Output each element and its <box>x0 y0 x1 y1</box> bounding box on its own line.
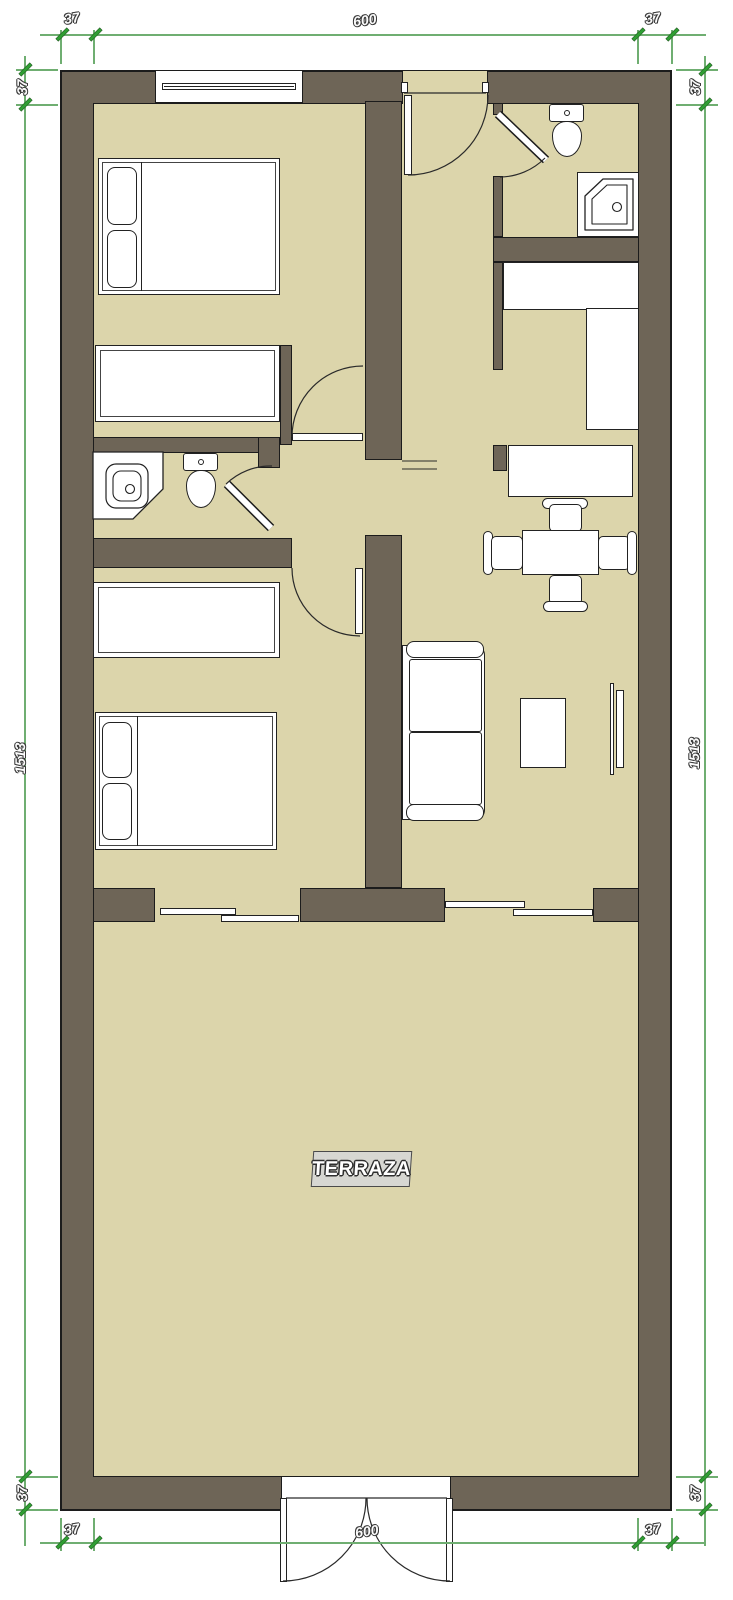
chair-west-seat <box>491 536 523 570</box>
sofa-cushion-b <box>409 732 482 805</box>
dim-bottom-right: 37 <box>633 1518 673 1540</box>
entrance-frame-left <box>401 82 408 93</box>
dining-table <box>522 530 599 575</box>
dimension-line-bottom <box>40 1542 706 1544</box>
dimension-line-top <box>40 34 706 36</box>
entrance-opening-top <box>402 71 488 104</box>
french-door-leaf-left <box>280 1498 287 1582</box>
desk <box>508 445 633 497</box>
entrance-door-leaf <box>404 95 412 175</box>
wall-kitchen-north <box>493 237 639 262</box>
tv-panel <box>616 690 624 768</box>
single-bed-bedroom2-inner <box>98 587 275 653</box>
dim-left-middle: 1513 <box>12 734 28 783</box>
pillow-bedroom2-a <box>102 722 132 778</box>
kitchen-counter-right <box>586 308 639 430</box>
wall-bathroom1-west-bottom <box>493 176 503 237</box>
pillow-bedroom1-b <box>107 230 137 288</box>
toilet-button-bath2 <box>198 459 204 465</box>
dim-right-top: 37 <box>687 68 703 107</box>
bedroom1-door-leaf <box>292 433 363 441</box>
wall-pillar-kitchen-sw <box>493 445 507 471</box>
window-glazing-line <box>164 86 294 87</box>
wall-pillar-bath2-door <box>258 437 280 468</box>
wall-bedroom1-corridor <box>365 101 402 460</box>
chair-east-seat <box>598 536 630 570</box>
dim-top-left: 37 <box>52 7 92 29</box>
wall-stub-bedroom1 <box>280 345 292 445</box>
dim-right-bottom: 37 <box>687 1474 703 1513</box>
single-bed-bedroom1-inner <box>100 350 275 417</box>
chair-east-back <box>627 531 637 575</box>
sliding-door-bedroom2-a <box>160 908 236 915</box>
dim-left-bottom: 37 <box>14 1474 30 1513</box>
wall-bathroom2-south <box>93 538 292 568</box>
terraza-label-text: TERRAZA <box>311 1158 412 1181</box>
french-door-opening <box>281 1477 451 1511</box>
pillow-bedroom1-a <box>107 167 137 225</box>
sofa-cushion-a <box>409 659 482 732</box>
french-door-leaf-right <box>446 1498 453 1582</box>
floor-plan: TERRAZA <box>0 0 733 1600</box>
wall-bathroom1-west-top <box>493 103 503 115</box>
kitchen-counter-top <box>503 262 639 310</box>
chair-south-back <box>543 601 588 612</box>
dim-bottom-left: 37 <box>52 1518 92 1540</box>
dimension-line-left <box>24 56 26 1546</box>
dim-bottom-center: 600 <box>343 1520 391 1543</box>
sliding-door-living-a <box>445 901 525 908</box>
sliding-door-living-b <box>513 909 593 916</box>
toilet-button-bath1 <box>564 110 570 116</box>
terraza-room-label: TERRAZA <box>311 1151 413 1187</box>
wall-terrace-1 <box>93 888 155 922</box>
tv-bracket <box>610 683 614 775</box>
corner-shower-bath1 <box>577 172 639 237</box>
double-bed-bedroom1-divider <box>141 162 142 291</box>
dim-top-right: 37 <box>633 7 673 29</box>
chair-north-seat <box>549 504 582 532</box>
dim-left-top: 37 <box>14 68 30 107</box>
entrance-frame-right <box>482 82 489 93</box>
wall-bedroom2-living <box>365 535 402 888</box>
wall-terrace-3 <box>593 888 639 922</box>
wall-terrace-2 <box>300 888 445 922</box>
dim-top-center: 600 <box>340 8 390 31</box>
dim-right-middle: 1513 <box>686 729 702 778</box>
wall-bathroom2-north <box>93 437 280 453</box>
dimension-line-right <box>704 56 706 1546</box>
sliding-door-bedroom2-b <box>221 915 299 922</box>
bedroom2-door-leaf <box>355 568 363 634</box>
wall-kitchen-west <box>493 262 503 370</box>
double-bed-bedroom2-divider <box>137 716 138 846</box>
pillow-bedroom2-b <box>102 783 132 840</box>
sofa-arm-bottom <box>406 804 484 821</box>
sofa-arm-top <box>406 641 484 658</box>
coffee-table <box>520 698 566 768</box>
